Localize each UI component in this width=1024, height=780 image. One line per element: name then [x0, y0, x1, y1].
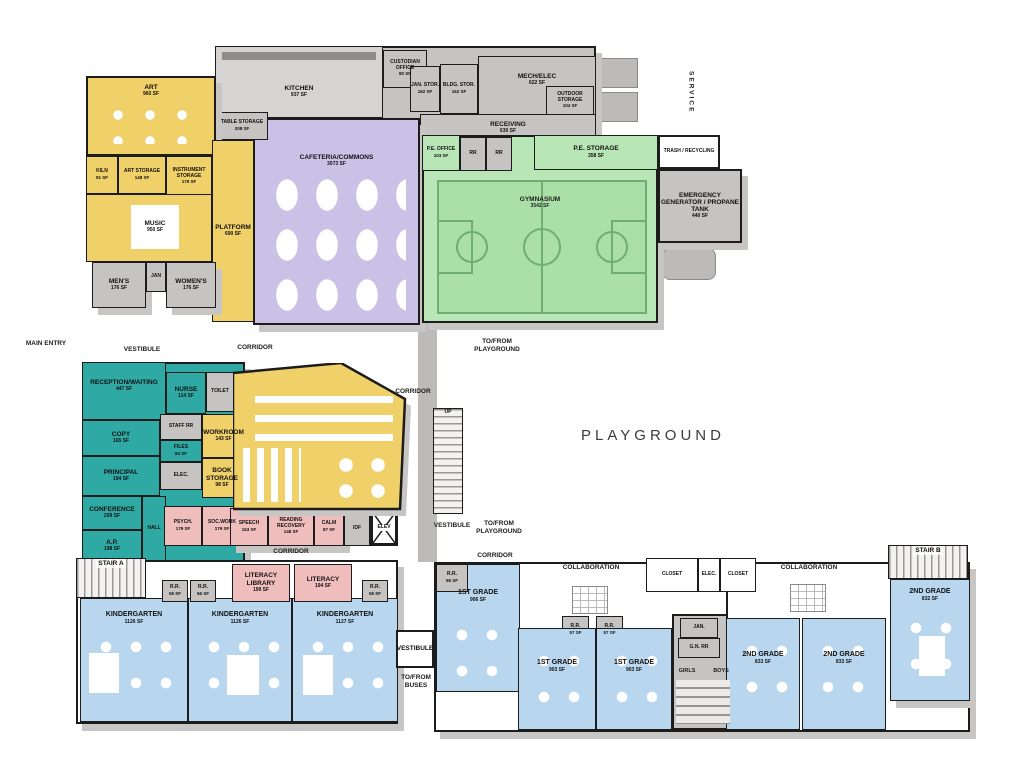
corridor-label-first-grade: CORRIDOR — [472, 552, 518, 560]
to-from-buses-label: TO/FROM BUSES — [394, 674, 438, 691]
girls-label: GIRLS — [672, 668, 702, 675]
vestibule-label-top: VESTIBULE — [116, 346, 168, 354]
room-cafeteria: CAFETERIA/COMMONS3073 SF — [253, 118, 420, 325]
room-first-grade-2: 1ST GRADE903 SF — [518, 628, 596, 730]
room-hall: HALL — [142, 496, 166, 562]
room-conference: CONFERENCE209 SF — [82, 496, 142, 530]
room-gn-rr: G.N. RR — [678, 638, 720, 658]
room-staff-rr: STAFF RR — [160, 414, 202, 440]
room-pe-office: P.E. OFFICE103 SF — [422, 135, 460, 171]
room-second-grade-2: 2ND GRADE833 SF — [802, 618, 886, 730]
library-stacks — [243, 448, 301, 502]
site-planting — [662, 248, 716, 280]
room-rr-k1: R.R.56 SF — [162, 580, 188, 602]
room-pe-rr-2: RR — [486, 137, 512, 171]
to-from-playground-bottom: TO/FROM PLAYGROUND — [474, 520, 524, 537]
room-principal: PRINCIPAL194 SF — [82, 456, 160, 496]
library-tables — [330, 452, 394, 502]
room-art-storage: ART STORAGE148 SF — [118, 156, 166, 194]
room-second-grade-3: 2ND GRADE832 SF — [890, 579, 970, 701]
service-label: SERVICE — [686, 66, 694, 118]
room-music: MUSIC950 SF — [86, 194, 212, 262]
classroom-rug — [303, 655, 333, 695]
room-instrument-storage: INSTRUMENT STORAGE179 SF — [166, 156, 212, 198]
room-first-grade-3: 1ST GRADE903 SF — [596, 628, 672, 730]
loading-dock — [600, 92, 638, 122]
room-kitchen: KITCHEN937 SF — [215, 46, 383, 118]
main-entry-label: MAIN ENTRY — [24, 340, 68, 348]
room-emergency-generator: EMERGENCY GENERATOR / PROPANE TANK440 SF — [658, 169, 742, 243]
room-art: ART960 SF — [86, 76, 216, 156]
room-trash-recycling: TRASH / RECYCLING — [658, 135, 720, 169]
room-jan-bottom: JAN. — [680, 618, 718, 638]
stair-b: STAIR B — [888, 545, 968, 579]
room-table-storage: TABLE STORAGE208 SF — [216, 112, 268, 140]
room-toilet: TOILET — [206, 372, 234, 412]
room-files: FILES84 SF — [160, 440, 202, 462]
room-closet-1: CLOSET — [646, 558, 698, 592]
boys-label: BOYS — [706, 668, 736, 675]
room-nurse: NURSE114 SF — [166, 372, 206, 414]
room-kindergarten-1: KINDERGARTEN1126 SF — [80, 598, 188, 722]
room-pe-rr-1: RR — [460, 137, 486, 171]
room-platform: PLATFORM690 SF — [212, 140, 254, 322]
collaboration-table — [790, 584, 826, 612]
music-equipment: MUSIC950 SF — [131, 205, 179, 249]
vestibule-label-mid: VESTIBULE — [430, 522, 474, 530]
stair-a: STAIR A — [76, 558, 146, 598]
gym-label: GYMNASIUM3542 SF — [498, 196, 582, 210]
room-kiln: KILN91 SF — [86, 156, 118, 194]
room-womens: WOMEN'S176 SF — [166, 262, 216, 308]
corridor-label-mid: CORRIDOR — [390, 388, 436, 396]
room-psych: PSYCH.179 SF — [164, 506, 202, 546]
room-jan-top: JAN — [146, 262, 166, 292]
room-elec-admin: ELEC. — [160, 462, 202, 490]
room-literacy: LITERACY194 SF — [294, 564, 352, 602]
vestibule-buses: VESTIBULE — [396, 630, 434, 668]
restroom-stalls — [676, 680, 730, 724]
room-pe-storage: P.E. STORAGE358 SF — [534, 135, 658, 170]
playground-label: PLAYGROUND — [548, 426, 758, 446]
corridor-label-top: CORRIDOR — [232, 344, 278, 352]
classroom-rug — [89, 653, 119, 693]
room-closet-2: CLOSET — [720, 558, 756, 592]
collaboration-label-1: COLLABORATION — [558, 564, 624, 572]
collaboration-table — [572, 586, 608, 614]
room-bldg-stor: BLDG. STOR.162 SF — [440, 64, 478, 114]
cafeteria-tables — [267, 170, 406, 315]
room-kindergarten-3: KINDERGARTEN1127 SF — [292, 598, 398, 722]
room-kindergarten-2: KINDERGARTEN1126 SF — [188, 598, 292, 722]
room-reception: RECEPTION/WAITING447 SF — [82, 362, 166, 420]
classroom-rug — [919, 636, 945, 676]
room-elec-closet: ELEC. — [698, 558, 720, 592]
floor-plan: KITCHEN937 SF CUSTODIAN OFFICE80 SF JAN.… — [0, 0, 1024, 780]
classroom-rug — [227, 655, 259, 695]
room-literacy-library: LITERACY LIBRARY199 SF — [232, 564, 290, 602]
room-copy: COPY165 SF — [82, 420, 160, 456]
art-tables — [102, 102, 198, 144]
collaboration-label-2: COLLABORATION — [776, 564, 842, 572]
loading-dock — [600, 58, 638, 88]
corridor-label-admin: CORRIDOR — [268, 548, 314, 556]
room-idf: IDF — [344, 512, 370, 546]
room-mens: MEN'S176 SF — [92, 262, 146, 308]
library-shelves — [255, 396, 393, 442]
student-desks — [447, 617, 509, 679]
room-second-grade-1: 2ND GRADE833 SF — [726, 618, 800, 730]
to-from-playground-top: TO/FROM PLAYGROUND — [472, 338, 522, 355]
stair-playground: UP — [433, 408, 463, 514]
